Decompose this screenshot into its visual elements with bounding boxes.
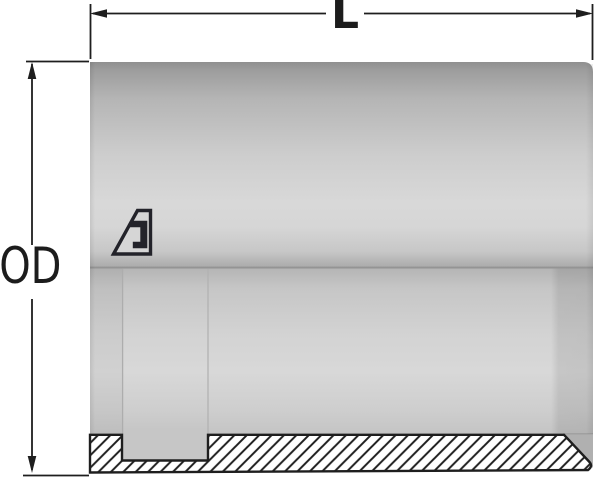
ferrule-drawing-canvas [0,0,600,479]
bore-skirt-shading [90,269,123,435]
od-arrowhead-top [28,62,37,79]
ferrule-bore-surface [90,269,593,436]
length-arrowhead-right [576,9,593,18]
groove-void [122,430,208,461]
length-label: L [321,0,369,36]
length-arrowhead-left [90,9,107,18]
shell-bore-edge-line [90,267,593,269]
outer-diameter-label: OD [0,241,57,291]
od-arrowhead-bottom [28,456,37,473]
ferrule-technical-drawing: L OD [0,0,600,479]
ferrule-outer-shell [90,62,593,268]
body-right-edge-shading [586,64,593,434]
